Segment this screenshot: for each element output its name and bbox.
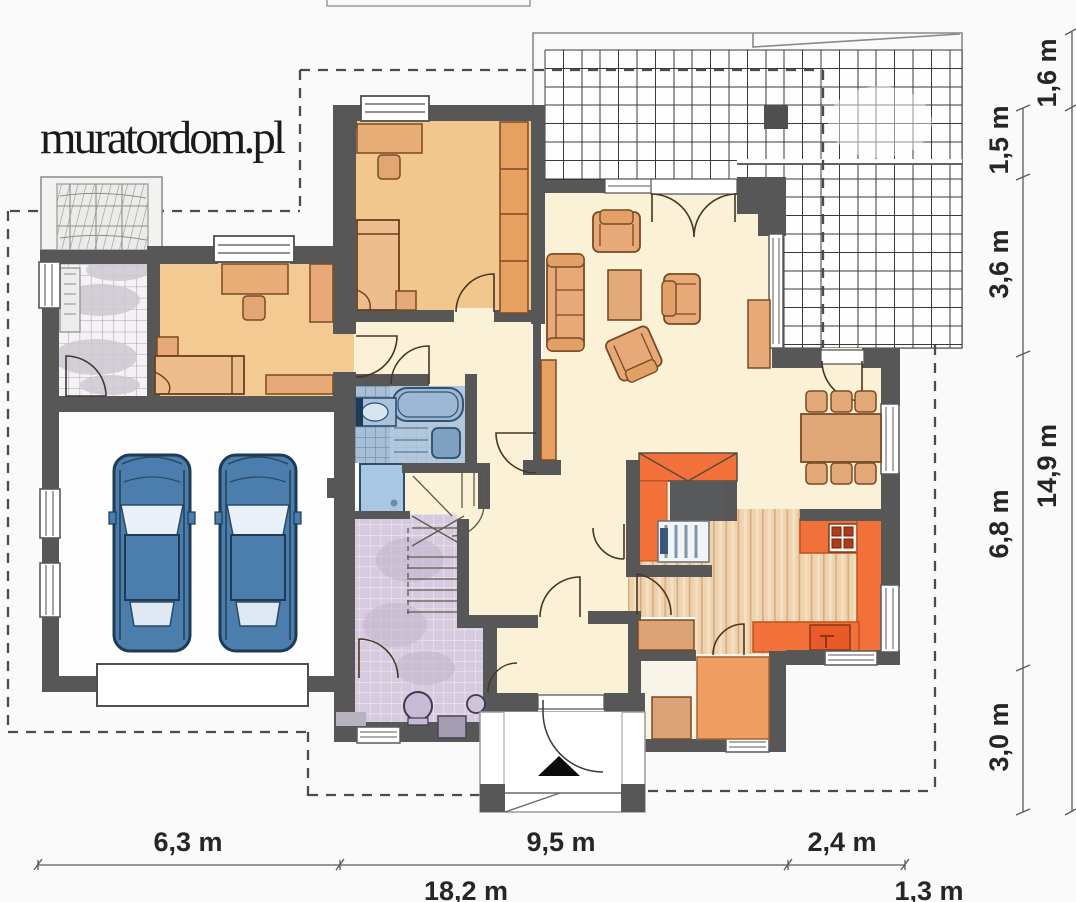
- svg-text:1,5 m: 1,5 m: [984, 105, 1014, 174]
- svg-text:3,6 m: 3,6 m: [984, 229, 1014, 298]
- svg-text:2,4 m: 2,4 m: [807, 827, 876, 857]
- svg-text:1,3 m: 1,3 m: [894, 876, 963, 902]
- svg-text:6,8 m: 6,8 m: [984, 489, 1014, 558]
- svg-text:muratordom.pl: muratordom.pl: [40, 112, 286, 164]
- svg-text:6,3 m: 6,3 m: [153, 827, 222, 857]
- svg-text:9,5 m: 9,5 m: [526, 827, 595, 857]
- svg-text:1,6 m: 1,6 m: [1032, 38, 1062, 107]
- svg-text:18,2 m: 18,2 m: [424, 876, 508, 902]
- svg-text:14,9 m: 14,9 m: [1032, 424, 1062, 508]
- svg-text:3,0 m: 3,0 m: [984, 702, 1014, 771]
